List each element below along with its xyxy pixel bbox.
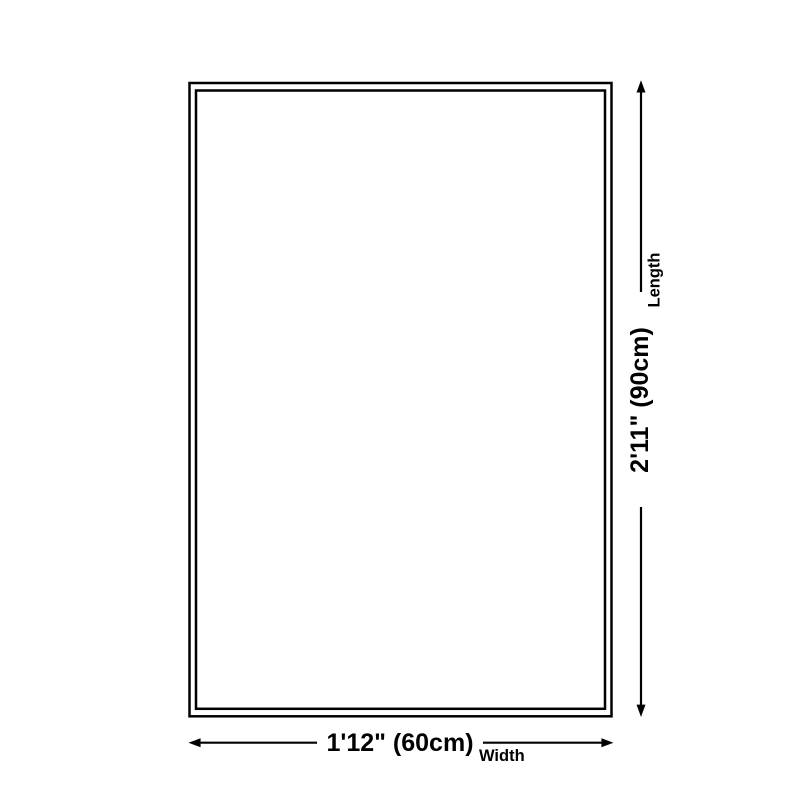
svg-text:1'12" (60cm): 1'12" (60cm) [326, 729, 473, 757]
svg-text:Length: Length [646, 253, 664, 308]
svg-text:Width: Width [479, 747, 525, 765]
svg-text:2'11" (90cm): 2'11" (90cm) [626, 327, 654, 473]
